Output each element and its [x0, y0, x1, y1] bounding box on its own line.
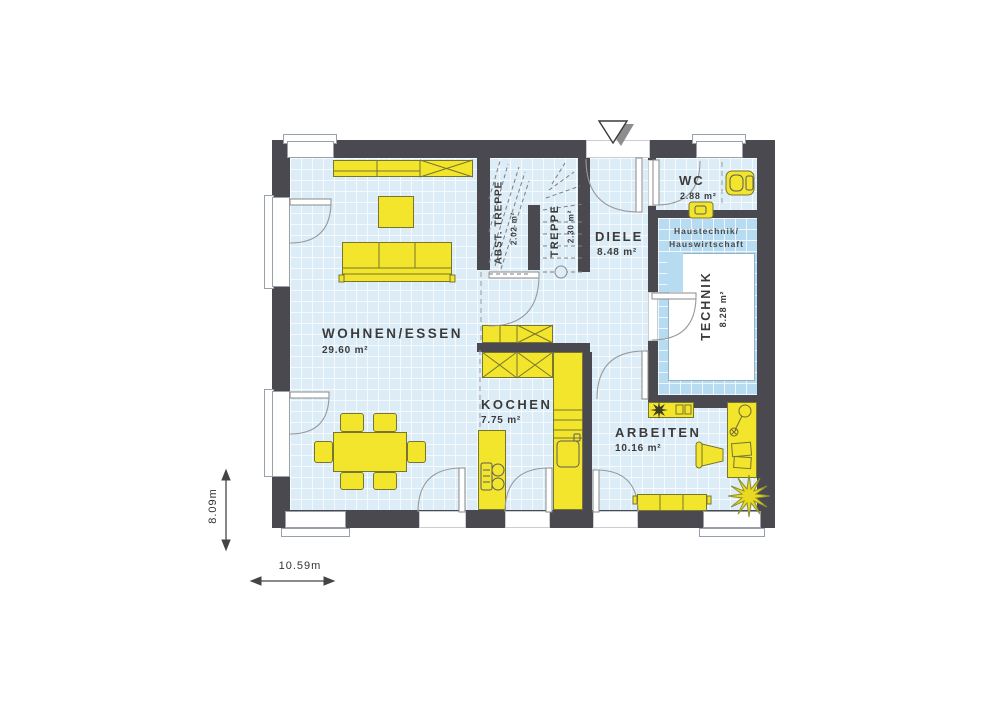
floor-plan-canvas: WOHNEN/ESSEN 29.60 m² KOCHEN 7.75 m² DIE… — [0, 0, 1000, 707]
room-label-treppe: TREPPE — [549, 191, 561, 271]
room-label-abst-treppe: ABST. TREPPE — [494, 168, 505, 278]
diele-office-door-leaf — [642, 351, 648, 399]
room-label-arbeiten: ARBEITEN — [615, 425, 701, 440]
shelf-items — [676, 405, 691, 414]
dimension-label-width: 10.59m — [269, 560, 331, 572]
terrace-door-kitchen-leaf — [546, 468, 552, 512]
room-label-kochen: KOCHEN — [481, 397, 552, 412]
dimension-arrow-height — [222, 470, 230, 550]
terrace-door-office-leaf — [593, 470, 599, 512]
room-area-technik: 8.28 m² — [718, 274, 728, 344]
room-area-abst-treppe: 2.02 m² — [510, 199, 519, 259]
sink-icon — [557, 434, 580, 467]
french-window-1-leaf — [290, 199, 331, 205]
entrance-door-leaf — [636, 158, 642, 212]
desk-papers — [732, 442, 752, 468]
room-area-arbeiten: 10.16 m² — [615, 443, 661, 454]
room-label-wc: WC — [679, 173, 705, 188]
dimension-label-height: 8.09m — [207, 476, 219, 536]
desk-lamp-icon — [730, 405, 751, 436]
plant-icon — [650, 401, 668, 419]
technik-door-leaf — [652, 293, 696, 299]
wc-door-leaf — [653, 160, 659, 205]
terrace-door-living-leaf — [459, 468, 465, 512]
plant-icon — [728, 475, 770, 517]
room-area-wohnen-essen: 29.60 m² — [322, 345, 368, 356]
entrance-marker-icon — [599, 121, 634, 146]
toilet-icon — [726, 171, 754, 195]
room-label-technik: TECHNIK — [699, 261, 713, 351]
technik-note-line2: Hauswirtschaft — [658, 239, 755, 249]
room-area-treppe: 2.30 m² — [567, 197, 576, 257]
room-area-kochen: 7.75 m² — [481, 415, 521, 426]
stove-icon — [481, 463, 504, 490]
room-area-diele: 8.48 m² — [597, 247, 637, 258]
dimension-arrow-width — [251, 577, 334, 585]
plan-linework — [0, 0, 1000, 707]
sofa-armrests — [339, 275, 711, 504]
room-label-diele: DIELE — [595, 229, 643, 244]
washbasin-icon — [689, 202, 713, 218]
french-window-2-leaf — [290, 392, 329, 398]
office-chair — [696, 442, 723, 468]
technik-note-line1: Haustechnik/ — [658, 226, 755, 236]
room-area-wc: 2.88 m² — [680, 191, 717, 201]
room-label-wohnen-essen: WOHNEN/ESSEN — [322, 326, 463, 341]
